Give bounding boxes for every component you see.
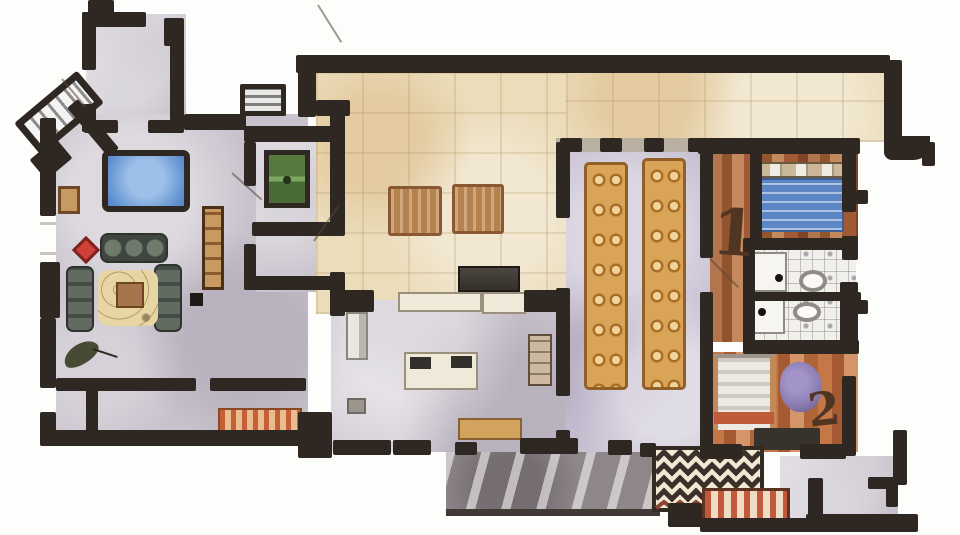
wall-segment xyxy=(700,444,742,459)
wall-segment xyxy=(40,430,308,446)
bookshelf xyxy=(202,206,224,290)
cooktop-2 xyxy=(451,356,472,368)
wall-segment xyxy=(298,412,332,458)
dining-table-2 xyxy=(642,158,686,390)
window-sill xyxy=(40,222,56,225)
window-pier xyxy=(644,138,664,152)
room-courtyard-strip xyxy=(566,72,886,142)
kitchen-counter-left xyxy=(398,292,482,312)
dining-table-1 xyxy=(584,162,628,390)
bedroom-1-label: 1 xyxy=(710,201,759,268)
right-sofa xyxy=(154,264,182,332)
wall-segment xyxy=(640,443,656,457)
terrace-patio xyxy=(446,452,660,516)
bed1-blanket xyxy=(754,178,844,232)
wall-segment xyxy=(520,438,578,454)
wall-segment xyxy=(244,126,336,142)
outer-wall-top xyxy=(296,55,890,73)
wall-segment xyxy=(556,142,570,218)
window-pier xyxy=(600,138,622,152)
bed2-foot-blanket xyxy=(714,412,774,424)
wall-segment xyxy=(244,142,256,186)
side-table xyxy=(190,293,203,306)
kitchen-counter-right xyxy=(482,292,526,314)
window-sill xyxy=(40,252,56,255)
left-sofa xyxy=(66,266,94,332)
staircase-upper xyxy=(240,84,286,116)
wall-segment xyxy=(842,152,856,212)
wall-segment xyxy=(84,120,118,133)
wall-segment xyxy=(668,503,702,527)
kitchen-bench xyxy=(458,418,522,440)
range-grill xyxy=(458,266,520,292)
wall-segment xyxy=(184,114,246,130)
outer-wall-hook-tip xyxy=(922,142,935,166)
coffee-table xyxy=(116,282,144,308)
wall-segment xyxy=(170,28,184,132)
bedroom-2-label: 2 xyxy=(806,384,843,433)
wall-segment xyxy=(524,290,560,312)
wall-segment xyxy=(330,290,374,312)
wall-segment xyxy=(330,114,345,236)
wall-segment xyxy=(40,318,56,388)
floor-mat-2 xyxy=(452,184,504,234)
wall-segment xyxy=(840,282,858,346)
three-seat-sofa xyxy=(100,233,168,263)
wall-segment xyxy=(700,518,820,532)
side-cabinet xyxy=(58,186,80,214)
pantry-shelves xyxy=(528,334,552,386)
floor-mat-1 xyxy=(388,186,442,236)
wall-segment xyxy=(393,440,431,455)
game-table-dot xyxy=(283,176,291,184)
door-knob-block xyxy=(856,300,868,314)
wall-segment xyxy=(698,138,860,154)
wall-segment xyxy=(86,384,98,432)
wall-segment xyxy=(800,444,846,459)
wall-segment xyxy=(333,440,391,455)
wall-segment xyxy=(700,292,713,454)
wall-segment xyxy=(244,276,336,290)
wall-segment xyxy=(210,378,306,391)
fireplace-block xyxy=(40,262,60,318)
wall-segment xyxy=(82,12,96,70)
wc2-toilet xyxy=(793,302,821,322)
wc1-door-leaf xyxy=(753,252,787,292)
wc1-door-knob xyxy=(775,274,783,282)
wc1-toilet xyxy=(799,270,827,292)
wall-segment xyxy=(56,378,196,391)
floorplan-canvas: 1 2 xyxy=(0,0,960,535)
cooktop-1 xyxy=(410,357,431,369)
wc2-door-knob xyxy=(758,308,766,316)
wall-segment xyxy=(806,514,918,532)
trash-bin xyxy=(347,398,366,414)
wall-segment xyxy=(455,442,477,455)
wall-segment xyxy=(893,430,907,485)
refrigerator xyxy=(346,312,368,360)
door-knob-block xyxy=(856,190,868,204)
bed1-headboard-shelf xyxy=(754,162,844,178)
wall-segment xyxy=(40,118,56,216)
wall-segment xyxy=(608,440,632,455)
wall-segment xyxy=(842,236,858,260)
pool-table xyxy=(102,150,190,212)
wall-segment xyxy=(148,120,184,133)
pencil-stroke xyxy=(317,4,342,42)
